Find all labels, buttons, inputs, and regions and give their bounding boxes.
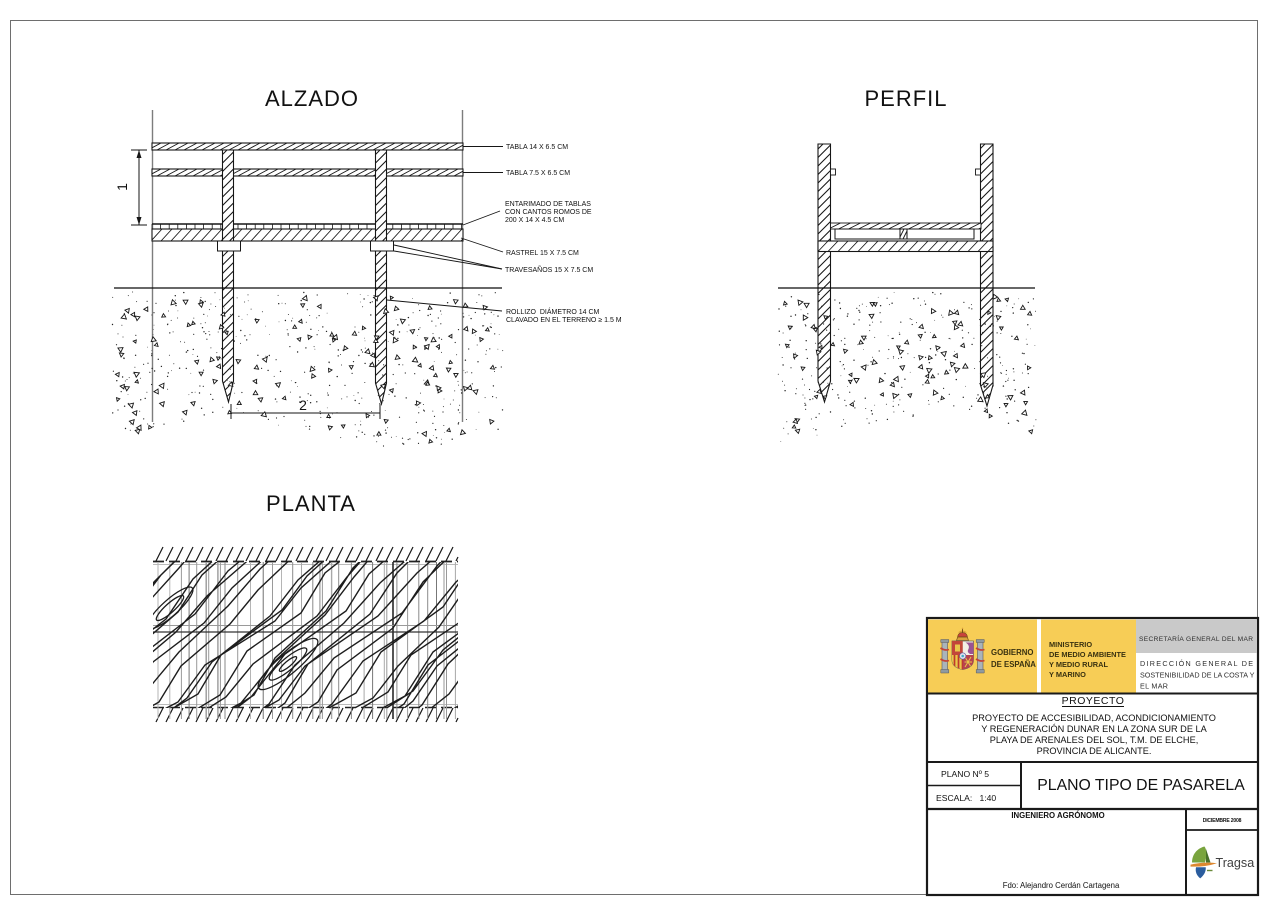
svg-text:Y REGENERACIÓN DUNAR EN LA ZON: Y REGENERACIÓN DUNAR EN LA ZONA SUR DE L… xyxy=(981,724,1207,734)
svg-text:PLAYA DE ARENALES DEL SOL, T.M: PLAYA DE ARENALES DEL SOL, T.M. DE ELCHE… xyxy=(990,735,1199,745)
svg-text:Tragsa: Tragsa xyxy=(1216,856,1255,870)
svg-text:CLAVADO EN EL TERRENO ≥ 1.5 M: CLAVADO EN EL TERRENO ≥ 1.5 M xyxy=(506,317,622,324)
svg-text:INGENIERO AGRÓNOMO: INGENIERO AGRÓNOMO xyxy=(1011,811,1104,820)
svg-text:PROYECTO DE ACCESIBILIDAD, ACO: PROYECTO DE ACCESIBILIDAD, ACONDICIONAMI… xyxy=(972,713,1216,723)
svg-text:DICIEMBRE 2008: DICIEMBRE 2008 xyxy=(1203,818,1242,824)
svg-text:PLANTA: PLANTA xyxy=(266,491,356,516)
svg-text:SOSTENIBILIDAD DE LA COSTA Y: SOSTENIBILIDAD DE LA COSTA Y xyxy=(1140,671,1255,680)
svg-text:Y MEDIO RURAL: Y MEDIO RURAL xyxy=(1049,660,1108,669)
svg-text:CON CANTOS ROMOS DE: CON CANTOS ROMOS DE xyxy=(505,209,592,216)
svg-text:PLANO TIPO DE PASARELA: PLANO TIPO DE PASARELA xyxy=(1037,777,1245,794)
svg-text:EL MAR: EL MAR xyxy=(1140,682,1168,691)
svg-text:TABLA 7.5 X 6.5 CM: TABLA 7.5 X 6.5 CM xyxy=(506,170,570,177)
svg-text:2: 2 xyxy=(299,397,307,413)
svg-text:200 X 14 X 4.5 CM: 200 X 14 X 4.5 CM xyxy=(505,217,564,224)
svg-text:MINISTERIO: MINISTERIO xyxy=(1049,640,1092,649)
svg-text:GOBIERNO: GOBIERNO xyxy=(991,648,1033,657)
svg-text:PERFIL: PERFIL xyxy=(864,86,947,111)
svg-text:DE MEDIO AMBIENTE: DE MEDIO AMBIENTE xyxy=(1049,650,1126,659)
svg-text:TABLA 14 X 6.5 CM: TABLA 14 X 6.5 CM xyxy=(506,144,568,151)
svg-text:Y MARINO: Y MARINO xyxy=(1049,670,1086,679)
svg-text:PLANO Nº 5: PLANO Nº 5 xyxy=(941,769,989,779)
svg-text:SECRETARÍA GENERAL DEL MAR: SECRETARÍA GENERAL DEL MAR xyxy=(1139,634,1253,643)
svg-text:DIRECCIÓN GENERAL DE: DIRECCIÓN GENERAL DE xyxy=(1140,659,1254,668)
svg-text:ROLLIZO DIÁMETRO 14 CM: ROLLIZO DIÁMETRO 14 CM xyxy=(506,307,600,316)
svg-text:ALZADO: ALZADO xyxy=(265,86,359,111)
svg-text:1: 1 xyxy=(114,183,130,191)
svg-text:DE ESPAÑA: DE ESPAÑA xyxy=(991,660,1036,669)
svg-text:PROYECTO: PROYECTO xyxy=(1062,695,1125,707)
svg-text:PROVINCIA DE ALICANTE.: PROVINCIA DE ALICANTE. xyxy=(1037,746,1152,756)
svg-text:TRAVESAÑOS 15 X 7.5 CM: TRAVESAÑOS 15 X 7.5 CM xyxy=(505,265,593,274)
svg-text:RASTREL 15 X 7.5 CM: RASTREL 15 X 7.5 CM xyxy=(506,250,579,257)
svg-text:ESCALA: 1:40: ESCALA: 1:40 xyxy=(936,793,996,803)
svg-text:Fdo: Alejandro Cerdán Cartagen: Fdo: Alejandro Cerdán Cartagena xyxy=(1003,881,1120,890)
svg-text:ENTARIMADO DE TABLAS: ENTARIMADO DE TABLAS xyxy=(505,201,591,208)
